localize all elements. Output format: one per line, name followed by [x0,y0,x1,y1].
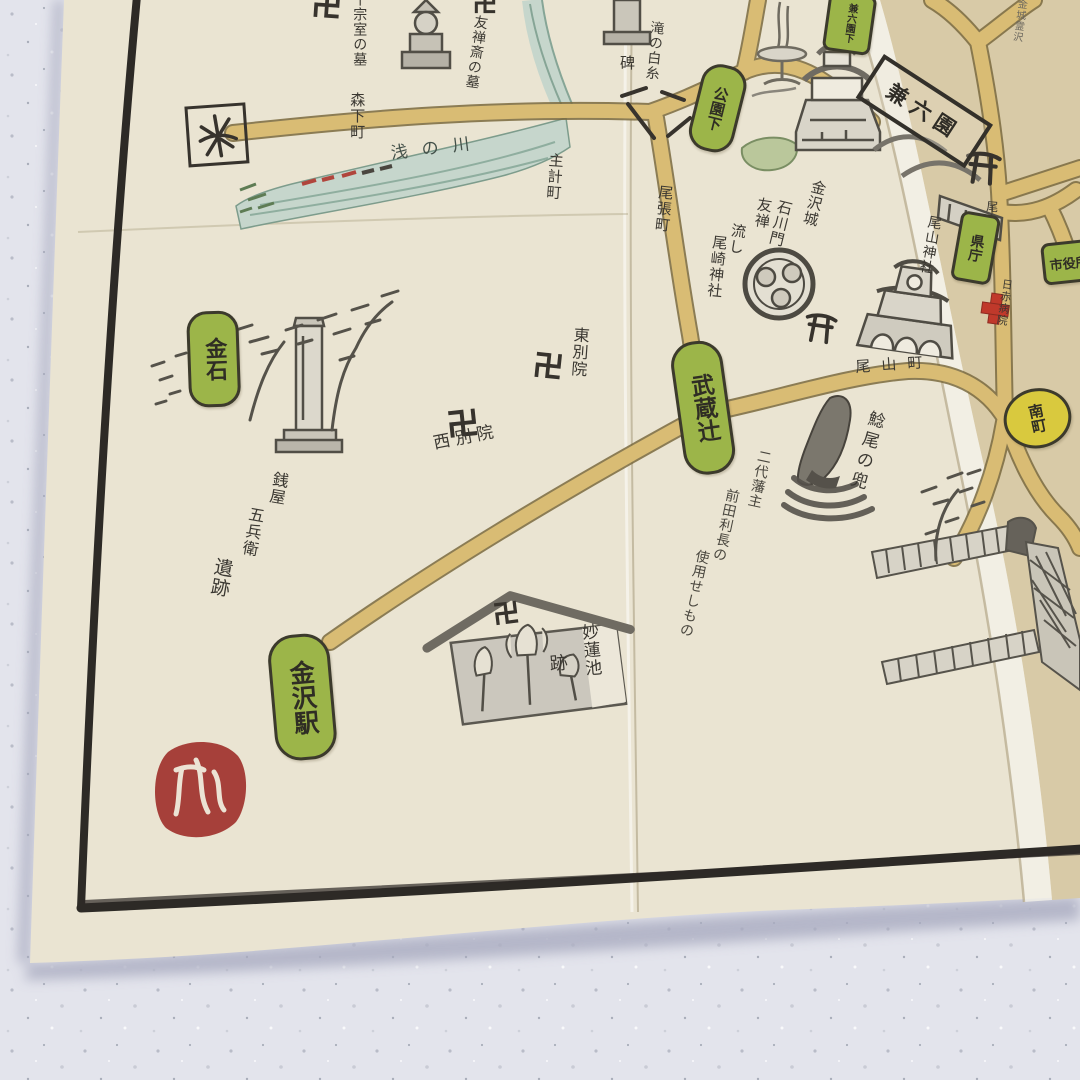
badge-kanaiwa: 金石 [186,310,241,408]
label-morishitamachi: 森下町 [349,92,364,140]
map-artwork [0,0,1080,1080]
label-myorenchi: 妙蓮池 [578,622,600,677]
label-yuzen-nagashi-2: 流し [727,222,747,256]
label-higashi-betsuin: 東別院 [568,326,588,378]
badge-kenrokuen-shita: 兼六園下 [822,0,878,56]
label-ato: 跡 [549,654,570,674]
label-kazuemachi: 主計町 [545,152,564,201]
label-hi-monument: 碑 [620,56,636,71]
label-sen-soshitsu-grave: 千宗室の墓 [352,0,366,67]
photo-of-kanazawa-map: 千宗室の墓 友禅斎の墓 森下町 浅の川 友禅 流し 主計町 滝の白糸 碑 尾張町… [0,0,1080,1080]
badge-shiyakusho: 市役所 [1040,238,1080,285]
label-yuzen-nagashi-1: 友禅 [753,196,773,230]
label-owaricho: 尾張町 [653,184,673,233]
aoi-crest-icon [745,250,813,318]
red-seal-icon [155,742,246,837]
label-zeniya-1: 銭屋 [266,470,288,506]
badge-kanazawa-station: 金沢駅 [266,632,339,763]
